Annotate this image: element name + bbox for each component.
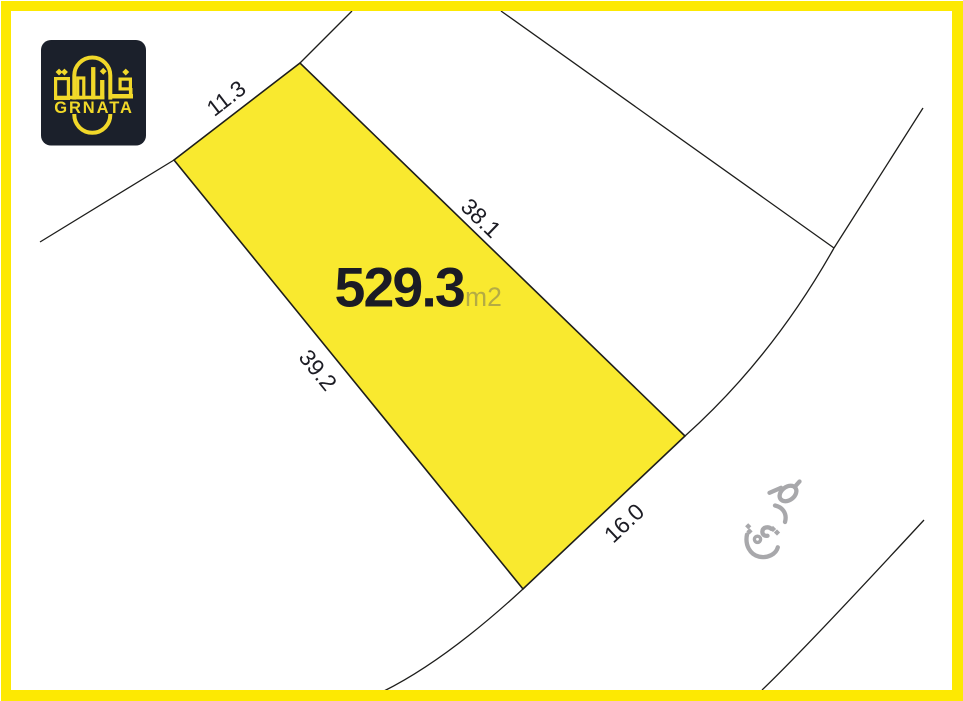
svg-text:529.3: 529.3	[335, 257, 464, 319]
svg-text:GRNATA: GRNATA	[54, 99, 134, 117]
svg-text:m2: m2	[465, 282, 502, 312]
